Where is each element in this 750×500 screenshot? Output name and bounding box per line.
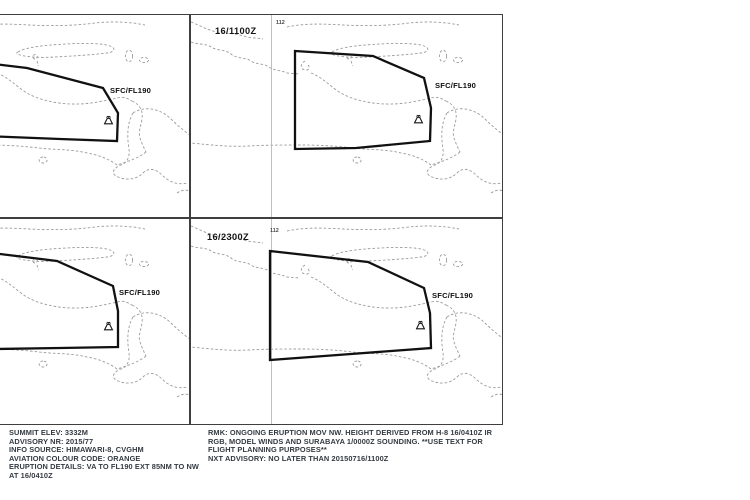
coastline-map xyxy=(191,22,503,194)
forecast-panel-top-left: SFC/FL190 xyxy=(0,14,190,218)
longitude-label: 112 xyxy=(276,20,285,26)
advisory-summary-block: SUMMIT ELEV: 3332M ADVISORY NR: 2015/77 … xyxy=(9,429,199,481)
eruption-time-line: AT 16/0410Z xyxy=(9,472,199,481)
volcano-icon xyxy=(105,322,113,329)
flight-level-label: SFC/FL190 xyxy=(432,291,473,300)
coastline-map xyxy=(0,226,190,398)
flight-level-label: SFC/FL190 xyxy=(110,86,151,95)
basemap-canvas: 112 SFC/FL190 16/1100Z xyxy=(191,15,503,218)
remarks-block: RMK: ONGOING ERUPTION MOV NW. HEIGHT DER… xyxy=(208,429,528,463)
longitude-label: 112 xyxy=(270,228,279,234)
ash-polygon xyxy=(0,57,118,141)
vaa-graphic-page: { "graphic": { "type": "volcanic-ash-adv… xyxy=(0,0,750,500)
volcano-icon xyxy=(105,116,113,123)
valid-time-label: 16/1100Z xyxy=(215,26,257,36)
forecast-panel-bottom-left: SFC/FL190 xyxy=(0,218,190,425)
ash-polygon xyxy=(295,51,431,149)
basemap-canvas: SFC/FL190 xyxy=(0,15,190,218)
coastline-map xyxy=(0,22,190,194)
forecast-panel-bottom-right: 112 SFC/FL190 16/2300Z xyxy=(190,218,503,425)
valid-time-label: 16/2300Z xyxy=(207,232,249,242)
forecast-panel-top-right: 112 SFC/FL190 16/1100Z xyxy=(190,14,503,218)
volcano-icon xyxy=(417,321,425,328)
volcano-icon xyxy=(415,115,423,122)
coastline-map xyxy=(191,226,503,398)
ash-polygon xyxy=(0,246,118,350)
ash-polygon xyxy=(270,251,431,360)
basemap-canvas: 112 SFC/FL190 16/2300Z xyxy=(191,219,503,424)
basemap-canvas: SFC/FL190 xyxy=(0,219,190,424)
next-advisory-line: NXT ADVISORY: NO LATER THAN 20150716/110… xyxy=(208,455,528,464)
flight-level-label: SFC/FL190 xyxy=(435,81,476,90)
flight-level-label: SFC/FL190 xyxy=(119,288,160,297)
